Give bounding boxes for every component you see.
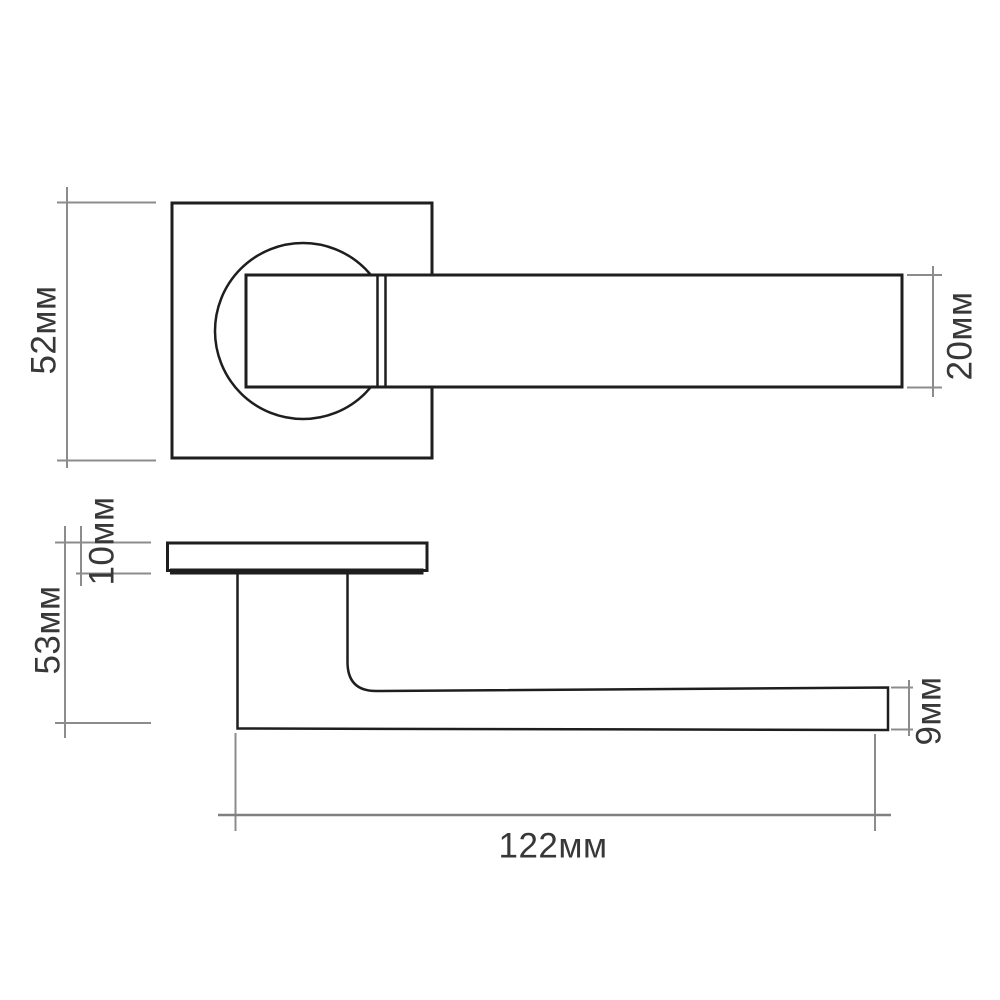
- rosette-plate-side-view: [168, 543, 428, 571]
- dim-53-label: 53мм: [29, 585, 68, 674]
- side-view: [168, 543, 889, 730]
- dimension-9mm: 9мм: [891, 676, 949, 745]
- top-view: [172, 203, 902, 458]
- handle-lever-side-profile: [238, 573, 889, 730]
- handle-grip-top-view: [246, 275, 902, 387]
- dimension-52mm: 52мм: [25, 187, 157, 468]
- drawing-page: 52мм 20мм 10мм 53мм: [0, 0, 1000, 1000]
- dim-10-label: 10мм: [83, 496, 122, 585]
- dim-9-label: 9мм: [910, 676, 949, 745]
- door-handle-drawing-canvas: 52мм 20мм 10мм 53мм: [0, 0, 1000, 1000]
- dim-52-label: 52мм: [25, 285, 64, 374]
- dim-122-label: 122мм: [498, 827, 607, 866]
- dimension-122mm: 122мм: [218, 733, 891, 866]
- dimension-10mm: 10мм: [55, 496, 151, 586]
- dim-20-label: 20мм: [941, 291, 980, 380]
- dimension-20mm: 20мм: [907, 266, 980, 397]
